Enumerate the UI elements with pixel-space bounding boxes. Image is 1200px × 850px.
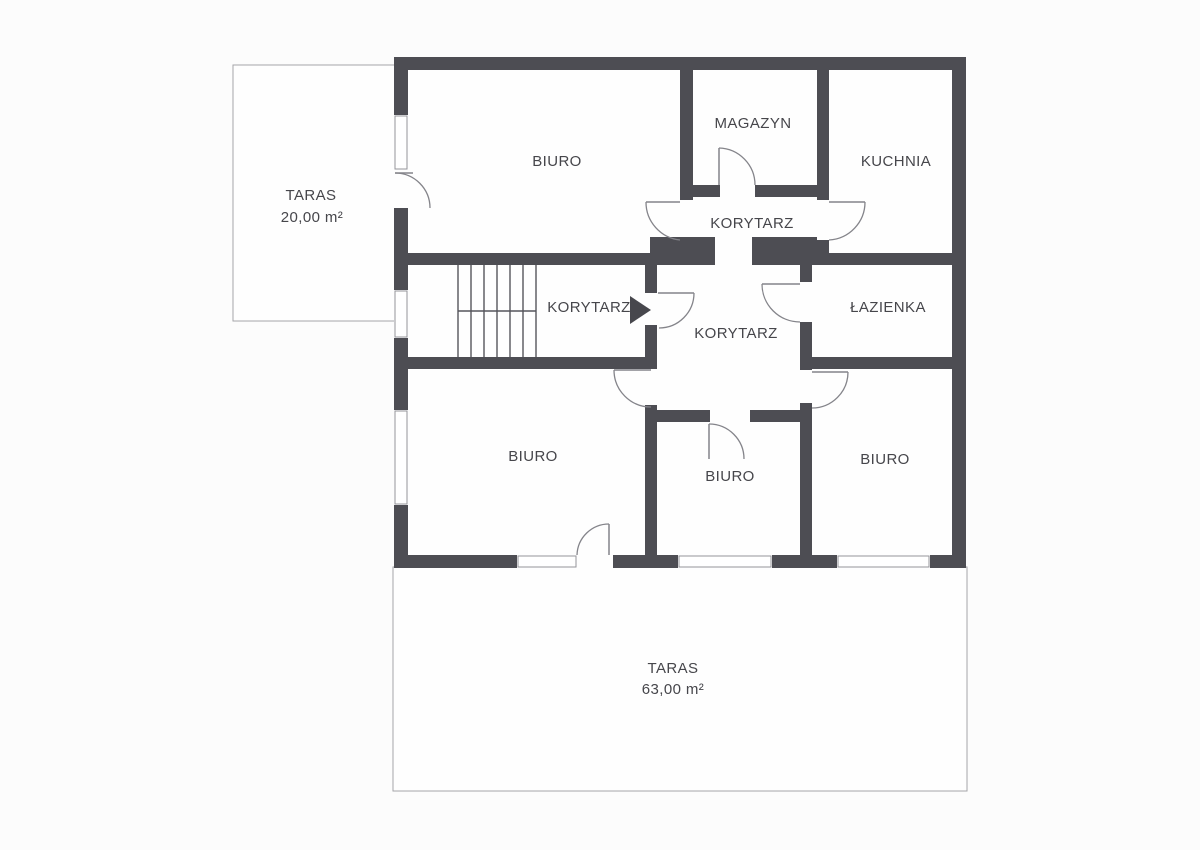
wall-segment [394,338,408,410]
room-label-lazienka: ŁAZIENKA [850,299,926,316]
wall-segment [394,357,657,369]
wall-segment [394,57,966,70]
terrace-large-outline [393,567,967,791]
room-label-biuro-bottom-left: BIURO [508,448,558,465]
floor-plan-drawing: BIURO MAGAZYN KUCHNIA KORYTARZ KORYTARZ … [0,0,1200,850]
wall-segment [657,410,710,422]
window [838,556,929,567]
wall-segment [613,555,678,568]
window [679,556,771,567]
room-label-korytarz-center: KORYTARZ [694,325,778,342]
wall-segment [750,410,802,422]
floor-plan-page: BIURO MAGAZYN KUCHNIA KORYTARZ KORYTARZ … [0,0,1200,850]
wall-segment [800,357,953,369]
window [395,116,407,169]
wall-segment [394,208,408,290]
wall-segment [800,322,812,370]
terrace-small-label: TARAS [286,187,337,204]
wall-segment [394,555,517,568]
wall-segment [680,185,720,197]
wall-segment [800,403,812,555]
terrace-small-area: 20,00 m² [281,209,343,226]
wall-segment [394,57,408,115]
terrace-large-label: TARAS [648,660,699,677]
wall-segment [645,265,657,293]
wall-segment [930,555,966,568]
wall-segment [764,253,953,265]
wall-segment [645,325,657,368]
room-label-kuchnia: KUCHNIA [861,153,931,170]
room-label-biuro-bottom-middle: BIURO [705,468,755,485]
terrace-large-area: 63,00 m² [642,681,704,698]
room-label-biuro-top-left: BIURO [532,153,582,170]
window [518,556,576,567]
window [395,411,407,504]
wall-segment [800,265,812,282]
wall-segment [755,185,817,197]
room-label-korytarz-stairs: KORYTARZ [547,299,631,316]
room-label-magazyn: MAGAZYN [715,115,792,132]
window [395,291,407,337]
wall-segment [680,70,693,200]
room-label-korytarz-top: KORYTARZ [710,215,794,232]
room-label-biuro-bottom-right: BIURO [860,451,910,468]
wall-segment [394,253,715,265]
wall-segment [952,57,966,568]
wall-segment [645,405,657,555]
wall-segment [817,70,829,200]
wall-segment [772,555,837,568]
